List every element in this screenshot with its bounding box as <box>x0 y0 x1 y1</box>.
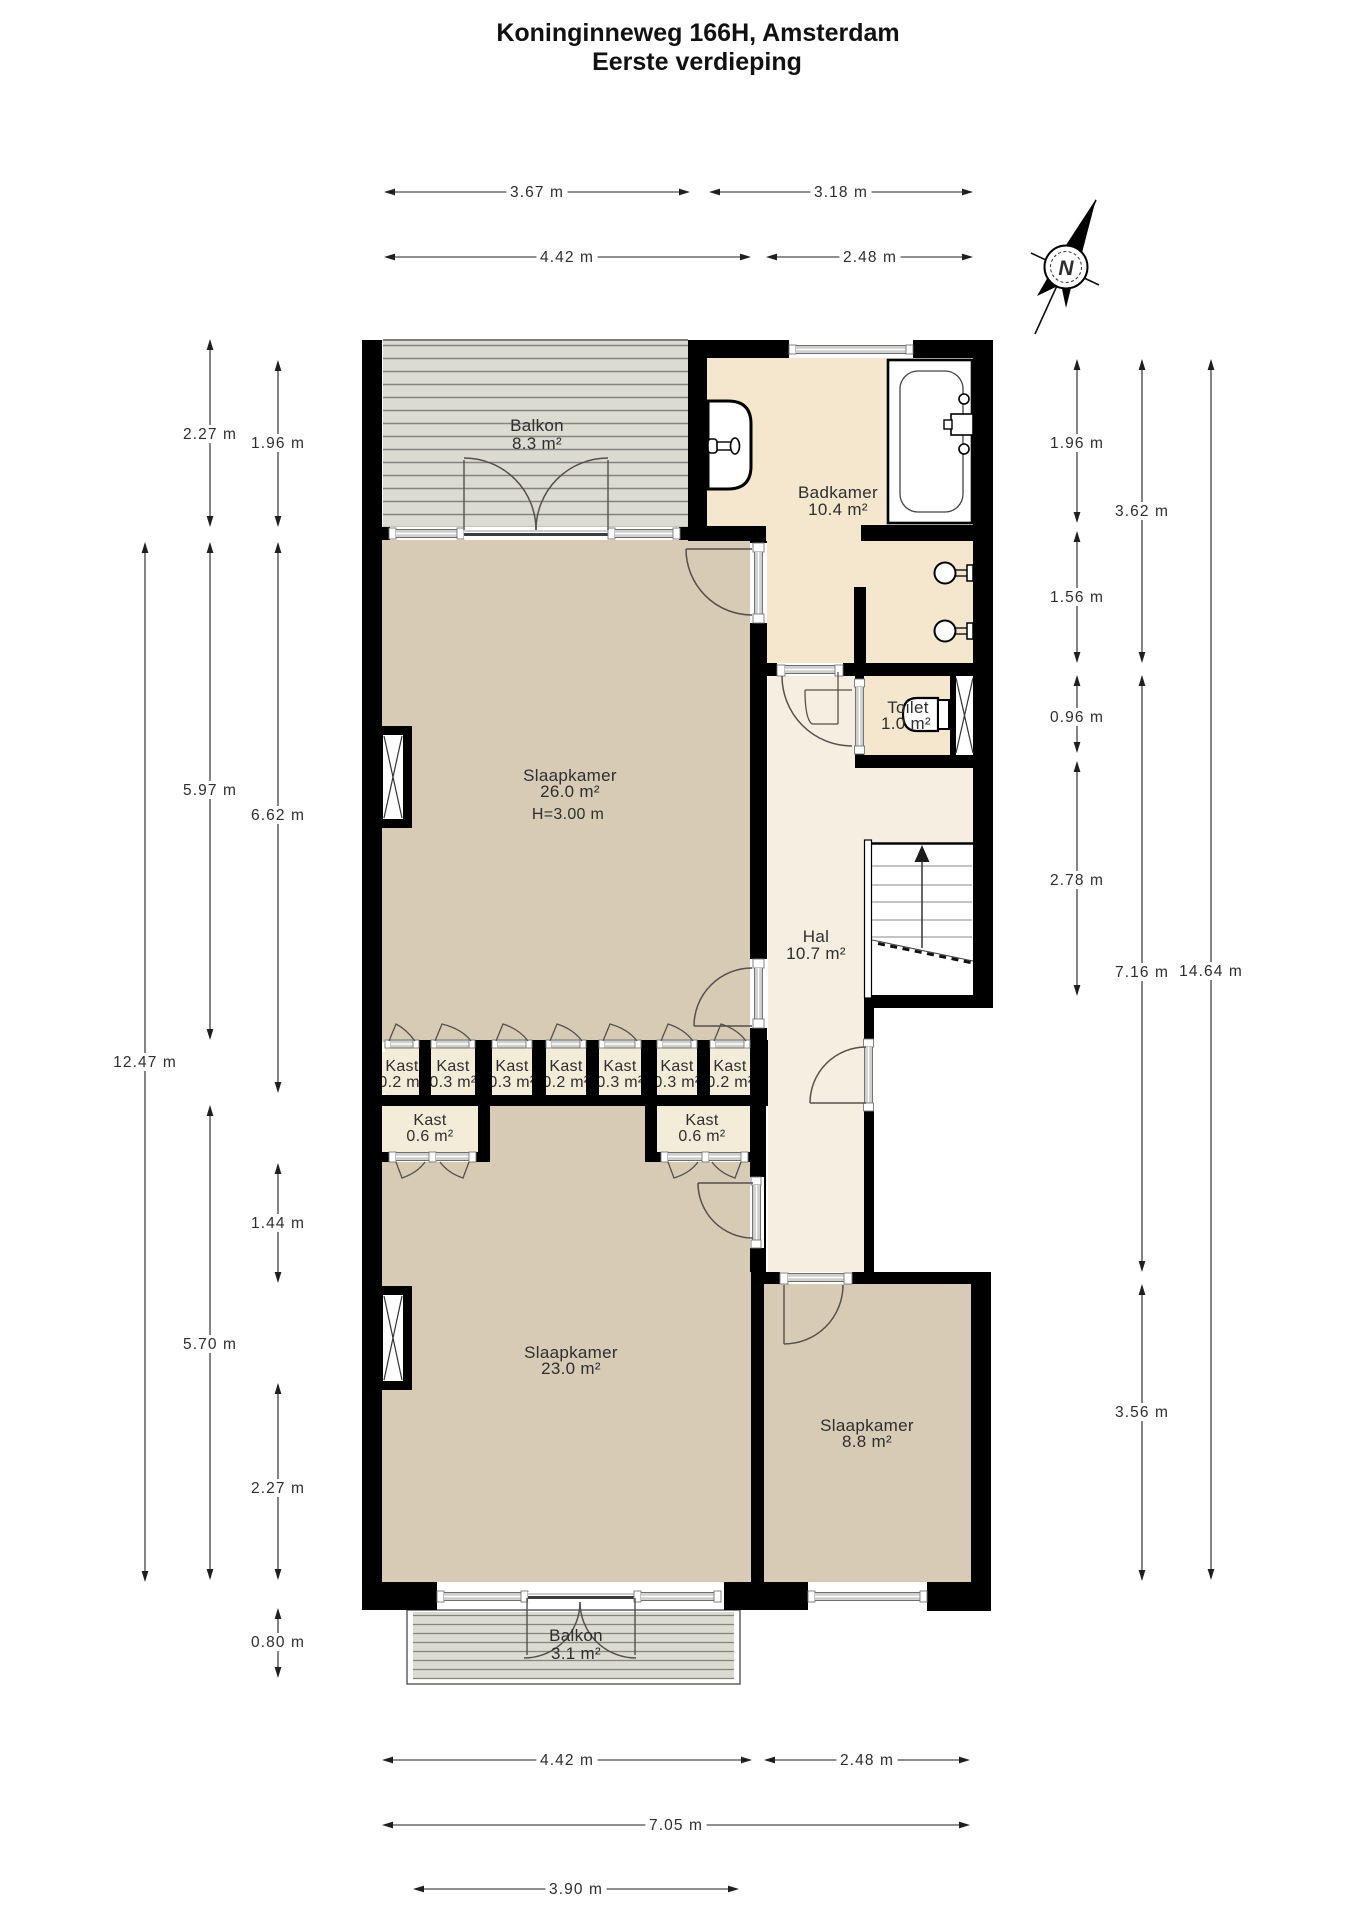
svg-text:Kast: Kast <box>495 1058 528 1075</box>
svg-text:1.96 m: 1.96 m <box>251 435 305 452</box>
svg-text:3.1 m²: 3.1 m² <box>551 1644 601 1663</box>
svg-text:0.3 m²: 0.3 m² <box>596 1074 644 1091</box>
svg-text:2.27 m: 2.27 m <box>183 426 237 443</box>
svg-text:14.64 m: 14.64 m <box>1179 963 1243 980</box>
svg-text:3.18 m: 3.18 m <box>814 184 868 201</box>
svg-text:Kast: Kast <box>660 1058 693 1075</box>
svg-text:Koninginneweg 166H, Amsterdam: Koninginneweg 166H, Amsterdam <box>496 19 899 47</box>
svg-text:H=3.00 m: H=3.00 m <box>532 806 604 823</box>
svg-text:23.0 m²: 23.0 m² <box>541 1359 601 1378</box>
svg-text:Kast: Kast <box>603 1058 636 1075</box>
svg-text:4.42 m: 4.42 m <box>540 249 594 266</box>
svg-text:6.62 m: 6.62 m <box>251 807 305 824</box>
svg-text:0.3 m²: 0.3 m² <box>653 1074 701 1091</box>
svg-text:N: N <box>1058 257 1074 280</box>
svg-text:0.3 m²: 0.3 m² <box>429 1074 477 1091</box>
svg-text:2.78 m: 2.78 m <box>1050 872 1104 889</box>
svg-text:3.56 m: 3.56 m <box>1115 1404 1169 1421</box>
svg-text:Balkon: Balkon <box>549 1626 603 1645</box>
svg-text:2.48 m: 2.48 m <box>840 1752 894 1769</box>
svg-text:0.6 m²: 0.6 m² <box>406 1128 454 1145</box>
svg-text:Eerste verdieping: Eerste verdieping <box>592 48 802 76</box>
svg-text:3.62 m: 3.62 m <box>1115 503 1169 520</box>
svg-text:Kast: Kast <box>549 1058 582 1075</box>
svg-text:0.3 m²: 0.3 m² <box>488 1074 536 1091</box>
svg-text:0.96 m: 0.96 m <box>1050 709 1104 726</box>
svg-text:0.2 m²: 0.2 m² <box>706 1074 754 1091</box>
svg-text:2.27 m: 2.27 m <box>251 1480 305 1497</box>
svg-text:10.4 m²: 10.4 m² <box>808 500 868 519</box>
svg-text:26.0 m²: 26.0 m² <box>540 782 600 801</box>
svg-text:1.56 m: 1.56 m <box>1050 589 1104 606</box>
svg-text:3.67 m: 3.67 m <box>510 184 564 201</box>
svg-text:Kast: Kast <box>713 1058 746 1075</box>
svg-text:8.3 m²: 8.3 m² <box>512 434 562 453</box>
svg-text:5.70 m: 5.70 m <box>183 1336 237 1353</box>
svg-text:4.42 m: 4.42 m <box>540 1752 594 1769</box>
svg-text:7.16 m: 7.16 m <box>1115 964 1169 981</box>
svg-text:10.7 m²: 10.7 m² <box>786 944 846 963</box>
svg-text:5.97 m: 5.97 m <box>183 782 237 799</box>
svg-text:12.47 m: 12.47 m <box>113 1054 177 1071</box>
svg-text:Kast: Kast <box>385 1058 418 1075</box>
svg-text:0.2 m²: 0.2 m² <box>542 1074 590 1091</box>
svg-text:0.80 m: 0.80 m <box>251 1634 305 1651</box>
svg-text:2.48 m: 2.48 m <box>843 249 897 266</box>
svg-text:Kast: Kast <box>413 1112 446 1129</box>
svg-text:1.96 m: 1.96 m <box>1050 435 1104 452</box>
svg-text:1.44 m: 1.44 m <box>251 1215 305 1232</box>
svg-text:0.6 m²: 0.6 m² <box>678 1128 726 1145</box>
svg-text:1.0 m²: 1.0 m² <box>881 714 931 733</box>
svg-text:Kast: Kast <box>685 1112 718 1129</box>
svg-text:Kast: Kast <box>436 1058 469 1075</box>
svg-text:0.2 m²: 0.2 m² <box>378 1074 426 1091</box>
svg-text:Balkon: Balkon <box>510 416 564 435</box>
svg-text:3.90 m: 3.90 m <box>549 1881 603 1898</box>
svg-text:8.8 m²: 8.8 m² <box>842 1432 892 1451</box>
svg-text:7.05 m: 7.05 m <box>649 1817 703 1834</box>
